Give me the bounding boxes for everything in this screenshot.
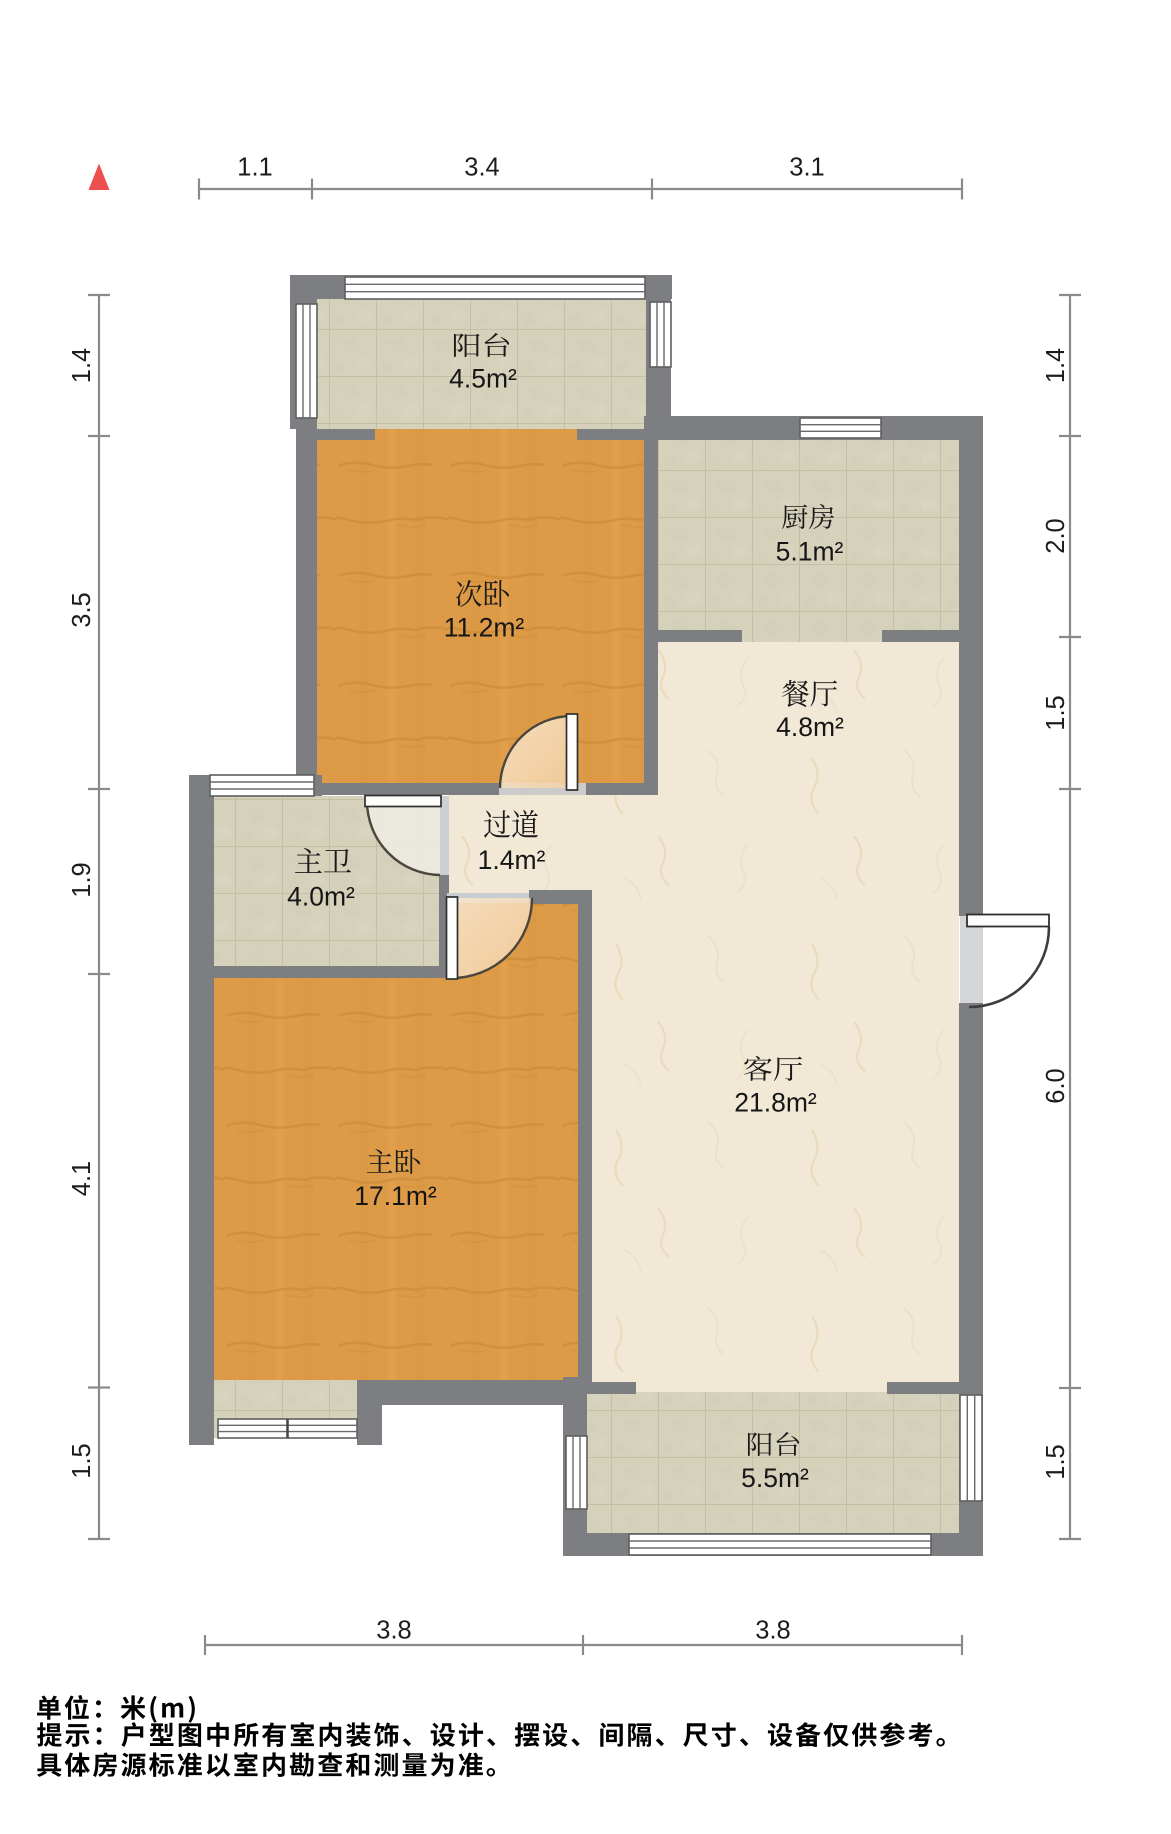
svg-text:1.4: 1.4 [68, 348, 96, 383]
svg-text:1.4m²: 1.4m² [478, 845, 546, 875]
svg-text:2.0: 2.0 [1042, 518, 1070, 553]
svg-text:1.4: 1.4 [1042, 348, 1070, 383]
svg-text:1.9: 1.9 [68, 862, 96, 897]
svg-text:1.5: 1.5 [1042, 695, 1070, 730]
svg-text:3.5: 3.5 [68, 592, 96, 627]
svg-text:3.8: 3.8 [376, 1617, 411, 1645]
svg-text:1.5: 1.5 [1042, 1444, 1070, 1479]
svg-text:1.1: 1.1 [237, 154, 272, 182]
svg-text:11.2m²: 11.2m² [444, 613, 525, 643]
svg-text:21.8m²: 21.8m² [734, 1088, 817, 1118]
svg-text:4.5m²: 4.5m² [449, 364, 517, 394]
svg-text:1.5: 1.5 [68, 1443, 96, 1478]
svg-text:4.8m²: 4.8m² [776, 712, 844, 742]
svg-text:4.0m²: 4.0m² [287, 882, 355, 912]
svg-text:17.1m²: 17.1m² [354, 1181, 437, 1211]
svg-text:6.0: 6.0 [1042, 1068, 1070, 1103]
svg-text:5.1m²: 5.1m² [776, 537, 844, 567]
svg-text:3.8: 3.8 [755, 1617, 790, 1645]
svg-text:4.1: 4.1 [68, 1161, 96, 1196]
svg-text:3.4: 3.4 [464, 154, 499, 182]
svg-text:5.5m²: 5.5m² [741, 1463, 809, 1493]
svg-text:3.1: 3.1 [789, 154, 824, 182]
